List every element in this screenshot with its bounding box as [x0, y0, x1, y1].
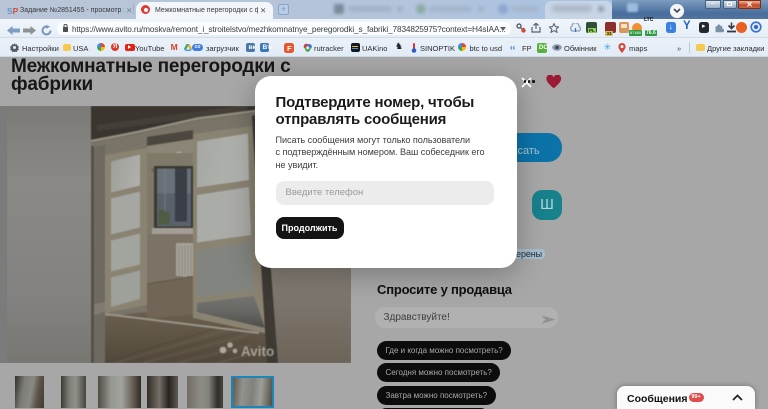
svg-text:Avito: Avito — [241, 344, 274, 359]
